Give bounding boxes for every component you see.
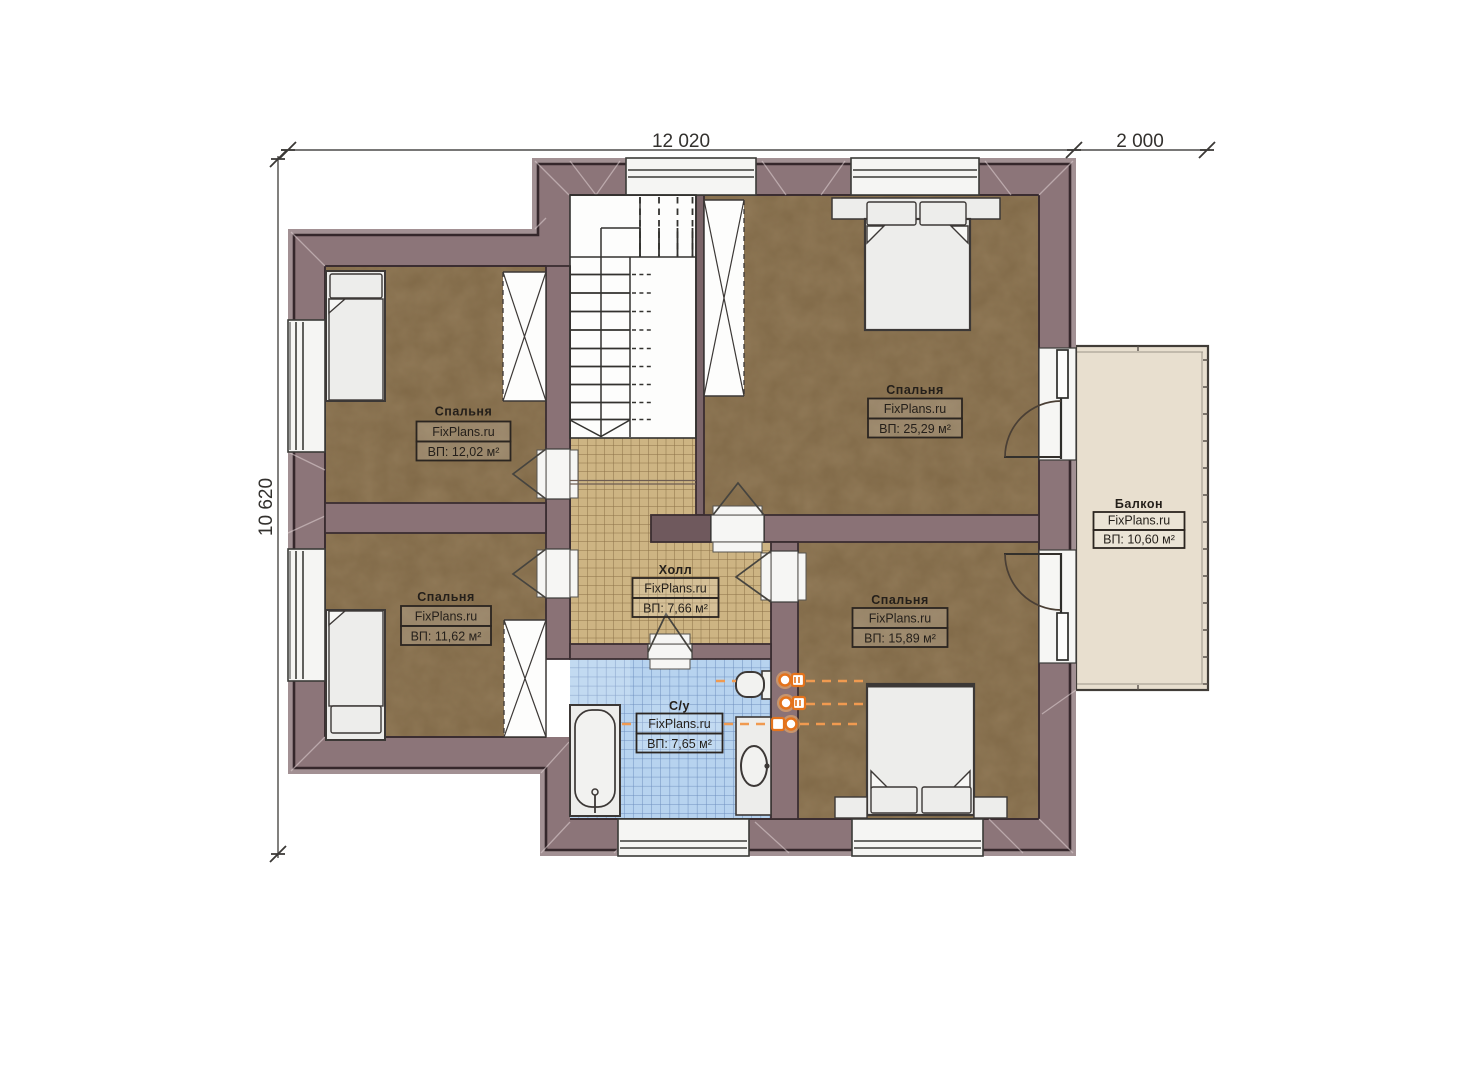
svg-text:FixPlans.ru: FixPlans.ru: [415, 610, 478, 624]
svg-text:10 620: 10 620: [256, 478, 277, 536]
svg-text:FixPlans.ru: FixPlans.ru: [884, 402, 947, 416]
svg-text:FixPlans.ru: FixPlans.ru: [869, 612, 932, 626]
svg-text:ВП: 25,29 м²: ВП: 25,29 м²: [879, 422, 951, 436]
svg-text:ВП: 10,60 м²: ВП: 10,60 м²: [1103, 533, 1175, 547]
svg-text:Спальня: Спальня: [417, 590, 475, 604]
svg-text:Спальня: Спальня: [886, 383, 944, 397]
svg-text:FixPlans.ru: FixPlans.ru: [644, 582, 707, 596]
svg-text:Спальня: Спальня: [435, 405, 493, 419]
svg-text:ВП: 15,89 м²: ВП: 15,89 м²: [864, 632, 936, 646]
svg-text:Балкон: Балкон: [1115, 497, 1163, 511]
svg-text:12 020: 12 020: [652, 131, 710, 152]
svg-text:Спальня: Спальня: [871, 593, 929, 607]
svg-text:ВП: 11,62 м²: ВП: 11,62 м²: [411, 630, 482, 644]
svg-text:ВП: 7,65 м²: ВП: 7,65 м²: [647, 737, 712, 751]
svg-text:Холл: Холл: [659, 563, 692, 577]
svg-text:ВП: 7,66 м²: ВП: 7,66 м²: [643, 602, 708, 616]
svg-text:С/у: С/у: [669, 699, 690, 713]
svg-text:2 000: 2 000: [1116, 131, 1164, 152]
svg-text:FixPlans.ru: FixPlans.ru: [432, 425, 495, 439]
svg-text:FixPlans.ru: FixPlans.ru: [648, 717, 711, 731]
svg-text:FixPlans.ru: FixPlans.ru: [1108, 514, 1171, 528]
svg-text:ВП: 12,02 м²: ВП: 12,02 м²: [428, 445, 500, 459]
